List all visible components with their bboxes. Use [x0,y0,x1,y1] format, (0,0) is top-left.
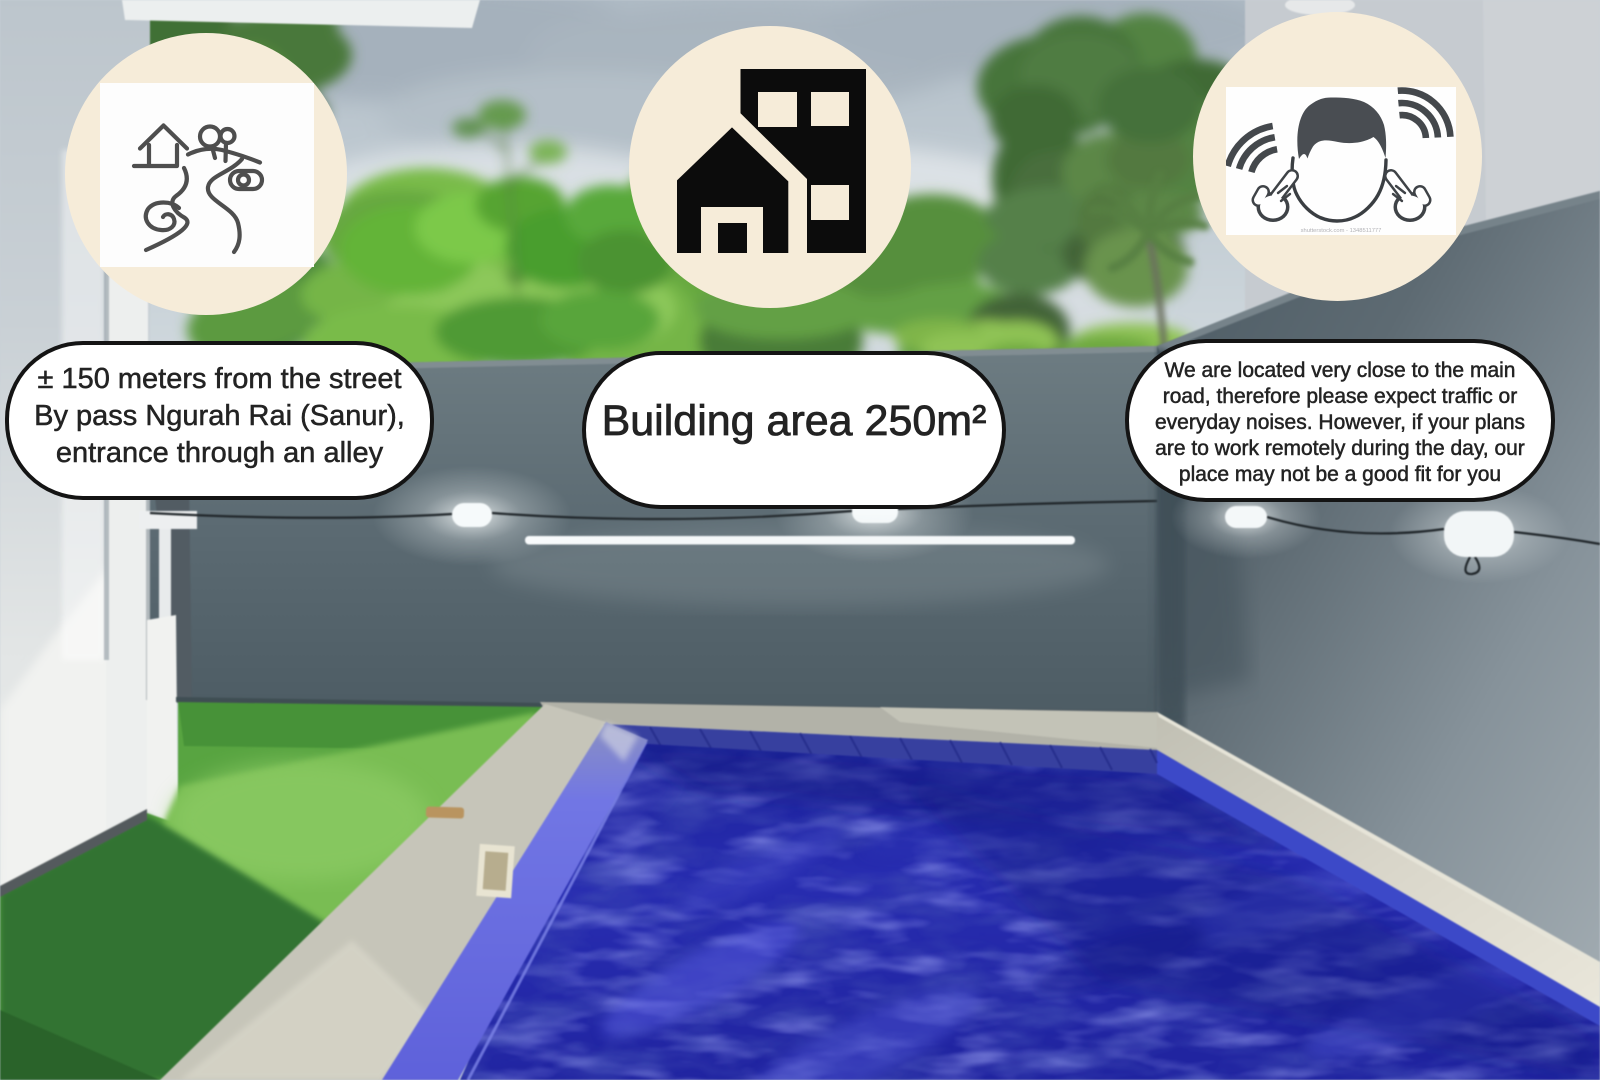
svg-text:shutterstock.com - 1348511777: shutterstock.com - 1348511777 [1301,228,1382,234]
